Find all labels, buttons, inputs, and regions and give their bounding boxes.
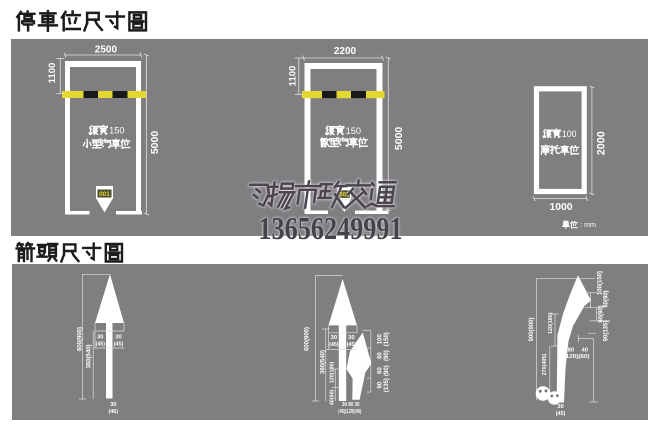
- svg-text:30: 30: [331, 335, 337, 341]
- svg-text:1100: 1100: [47, 63, 58, 84]
- svg-text:001: 001: [99, 191, 110, 198]
- svg-text:30: 30: [97, 335, 103, 341]
- svg-text:360(540): 360(540): [87, 344, 93, 368]
- svg-text:1000: 1000: [549, 202, 572, 213]
- svg-text:(150): (150): [384, 332, 390, 346]
- svg-text:40: 40: [581, 347, 587, 353]
- svg-text:60(90): 60(90): [598, 305, 604, 322]
- svg-text:(135): (135): [384, 378, 390, 392]
- svg-text:150: 150: [109, 126, 124, 136]
- svg-text:30: 30: [348, 335, 354, 341]
- svg-text:120(180): 120(180): [330, 362, 336, 384]
- svg-text:150: 150: [346, 126, 361, 136]
- svg-text:2500: 2500: [95, 45, 118, 56]
- svg-text:(90): (90): [384, 365, 390, 376]
- svg-text:120(180): 120(180): [548, 312, 554, 334]
- svg-text:90: 90: [378, 381, 384, 388]
- svg-text:600(900): 600(900): [77, 327, 83, 351]
- svg-text:(45)(120)(45): (45)(120)(45): [338, 409, 361, 415]
- svg-text:13656249991: 13656249991: [258, 212, 402, 247]
- svg-text:1100: 1100: [287, 66, 298, 87]
- svg-text:30: 30: [557, 404, 563, 410]
- svg-text:2000: 2000: [596, 131, 608, 155]
- svg-text:2200: 2200: [334, 46, 357, 57]
- svg-text:60: 60: [378, 352, 384, 359]
- svg-text:40(60): 40(60): [330, 389, 336, 405]
- svg-text:5000: 5000: [149, 131, 161, 155]
- svg-text:(45): (45): [556, 411, 566, 417]
- svg-text:: mm: : mm: [580, 220, 596, 229]
- svg-text:30: 30: [115, 335, 121, 341]
- svg-text:60(90): 60(90): [603, 290, 609, 307]
- svg-text:270(405): 270(405): [542, 354, 548, 376]
- svg-text:100: 100: [562, 129, 577, 139]
- svg-text:30: 30: [110, 402, 116, 408]
- svg-text:360(540): 360(540): [321, 350, 327, 374]
- svg-text:(45): (45): [96, 341, 106, 347]
- svg-text:80: 80: [568, 347, 574, 353]
- svg-text:(90): (90): [384, 350, 390, 361]
- svg-text:5000: 5000: [393, 127, 405, 151]
- svg-text:(45): (45): [329, 342, 339, 348]
- svg-text:(45): (45): [347, 342, 357, 348]
- svg-text:600(900): 600(900): [304, 327, 310, 351]
- svg-text:60: 60: [378, 367, 384, 374]
- svg-text:90(135): 90(135): [603, 321, 609, 342]
- svg-text:(120)(60): (120)(60): [564, 354, 590, 360]
- svg-text:30 80 30: 30 80 30: [342, 402, 360, 408]
- svg-text:900(900): 900(900): [529, 317, 535, 341]
- svg-text:(46): (46): [109, 409, 119, 415]
- svg-text:100: 100: [378, 334, 384, 345]
- svg-text:(45): (45): [114, 341, 124, 347]
